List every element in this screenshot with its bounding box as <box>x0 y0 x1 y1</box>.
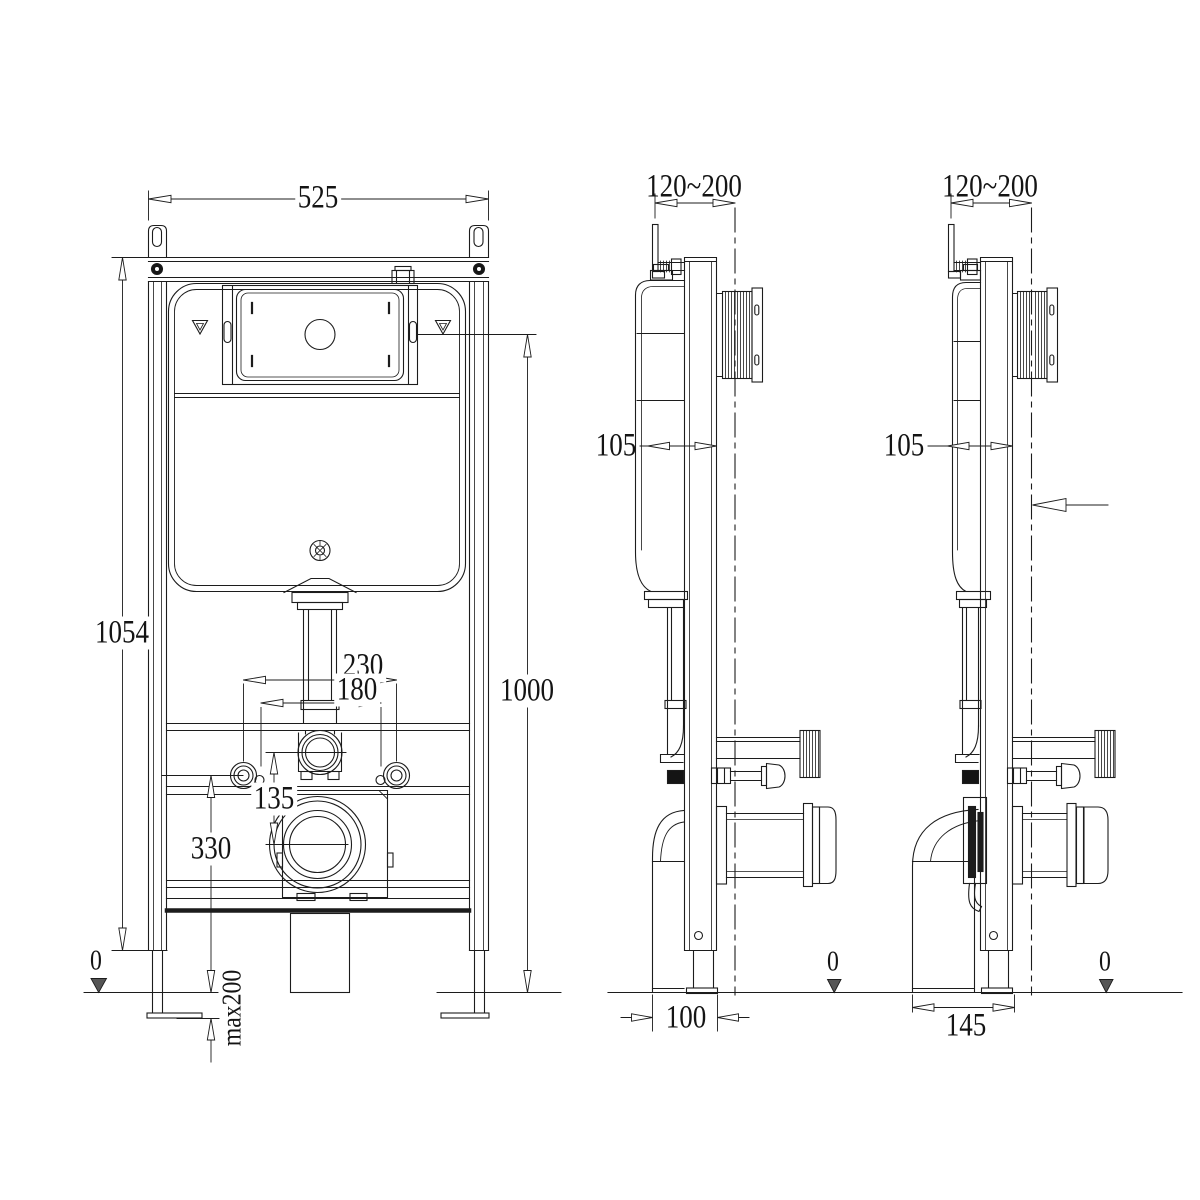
dim-front-outlet-height: 330 <box>188 833 234 866</box>
dim-right-frame-depth: 105 <box>884 430 925 463</box>
level-marker-icon <box>91 979 107 993</box>
dim-center-frame-depth: 105 <box>596 430 637 463</box>
foot-plate-left <box>147 1013 202 1018</box>
dim-front-fixing-inner: 180 <box>334 674 380 707</box>
technical-drawing-page: 525 1054 1000 230 180 135 330 0 max200 1… <box>0 0 1200 1200</box>
mounting-tab-right <box>470 226 489 258</box>
access-panel <box>237 290 404 381</box>
front-view <box>147 226 489 1019</box>
dim-front-width: 525 <box>295 182 341 215</box>
mounting-stud <box>1008 764 1081 789</box>
level-marker-icon <box>828 980 842 993</box>
front-view-dimensions <box>84 191 561 1062</box>
flush-button-housing <box>717 288 763 382</box>
tab-slot-right <box>474 228 483 247</box>
dim-front-floor-level: 0 <box>90 947 102 976</box>
dim-front-panel-height: 1000 <box>497 675 556 708</box>
tank-screw <box>310 541 330 561</box>
dim-right-outlet-distance: 145 <box>946 1010 987 1043</box>
side-view-right <box>913 208 1116 995</box>
access-panel-bracket <box>223 286 418 385</box>
waste-connector <box>1013 804 1109 887</box>
mounting-stud <box>712 764 786 789</box>
dim-center-wall-thickness: 120~200 <box>646 171 742 204</box>
waste-elbow <box>653 811 685 993</box>
side-view-center-dimensions <box>621 194 841 1031</box>
cistern-tank <box>169 284 466 592</box>
outlet-duct <box>291 914 350 993</box>
dim-center-outlet-distance: 100 <box>663 1002 709 1035</box>
flush-button-housing <box>1013 288 1058 382</box>
foot-plate-right <box>441 1013 489 1018</box>
panel-hole <box>305 320 335 350</box>
mounting-tab-left <box>149 226 167 258</box>
dim-center-floor-level: 0 <box>827 948 839 977</box>
waste-connector <box>717 804 837 887</box>
dim-front-foot-adjust: max200 <box>219 970 246 1047</box>
flush-elbow-outlet <box>298 731 342 780</box>
dim-right-wall-thickness: 120~200 <box>942 171 1038 204</box>
tab-slot-left <box>153 228 162 247</box>
side-view-center <box>636 208 837 995</box>
level-marker-icon <box>1100 980 1114 993</box>
dim-front-flush-offset: 135 <box>251 783 297 816</box>
dim-right-floor-level: 0 <box>1099 948 1111 977</box>
dim-front-frame-height: 1054 <box>92 617 151 650</box>
